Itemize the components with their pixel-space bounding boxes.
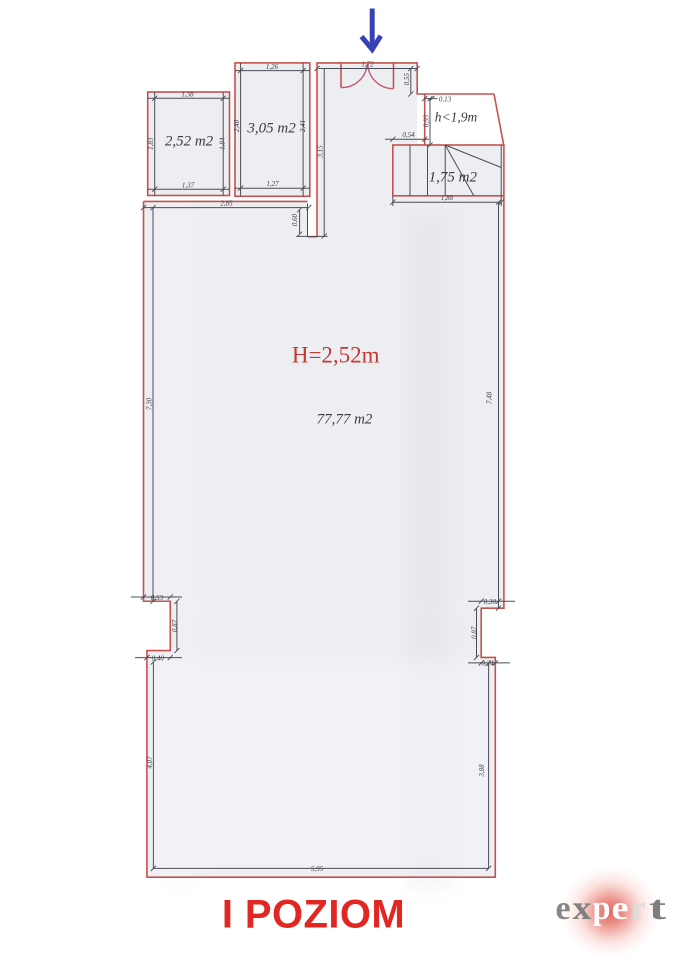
- svg-text:e: e: [612, 890, 629, 927]
- svg-text:2,52 m2: 2,52 m2: [165, 134, 214, 150]
- svg-text:2,40: 2,40: [233, 119, 241, 132]
- svg-text:t: t: [649, 890, 667, 927]
- svg-text:x: x: [573, 890, 592, 927]
- svg-text:77,77 m2: 77,77 m2: [317, 412, 373, 428]
- svg-text:0,87: 0,87: [471, 626, 479, 639]
- svg-text:7,30: 7,30: [146, 397, 154, 410]
- svg-text:e: e: [556, 890, 571, 927]
- svg-text:1,26: 1,26: [266, 63, 279, 71]
- svg-text:0,93: 0,93: [423, 114, 431, 127]
- svg-text:0,60: 0,60: [291, 213, 299, 226]
- svg-text:0,24: 0,24: [481, 660, 494, 668]
- svg-text:3,05 m2: 3,05 m2: [246, 121, 296, 137]
- svg-text:0,40: 0,40: [152, 654, 165, 662]
- svg-text:H=2,52m: H=2,52m: [292, 343, 380, 368]
- svg-text:1,38: 1,38: [181, 91, 194, 99]
- svg-text:1,27: 1,27: [266, 180, 279, 188]
- svg-text:0,13: 0,13: [439, 96, 452, 104]
- svg-text:1,84: 1,84: [219, 137, 227, 150]
- svg-text:1,83: 1,83: [147, 137, 155, 150]
- svg-text:r: r: [631, 890, 646, 927]
- svg-text:0,53: 0,53: [151, 594, 164, 602]
- svg-text:I POZIOM: I POZIOM: [222, 893, 405, 937]
- svg-text:7,48: 7,48: [486, 391, 494, 404]
- svg-text:5,95: 5,95: [311, 865, 324, 873]
- svg-text:0,87: 0,87: [171, 619, 179, 632]
- svg-text:2,41: 2,41: [299, 120, 307, 132]
- svg-text:1,88: 1,88: [441, 194, 454, 202]
- svg-text:0,30: 0,30: [484, 598, 497, 606]
- svg-text:h<1,9m: h<1,9m: [435, 110, 478, 125]
- svg-text:3,15: 3,15: [317, 145, 325, 159]
- svg-text:3,88: 3,88: [478, 764, 486, 778]
- svg-text:2,85: 2,85: [220, 200, 233, 208]
- svg-text:0,54: 0,54: [402, 131, 415, 139]
- svg-text:1,72: 1,72: [361, 61, 374, 69]
- svg-text:0,55: 0,55: [403, 73, 411, 86]
- svg-text:p: p: [593, 890, 611, 927]
- svg-text:4,07: 4,07: [146, 756, 154, 769]
- svg-text:1,37: 1,37: [182, 182, 195, 190]
- svg-text:1,75 m2: 1,75 m2: [429, 170, 478, 186]
